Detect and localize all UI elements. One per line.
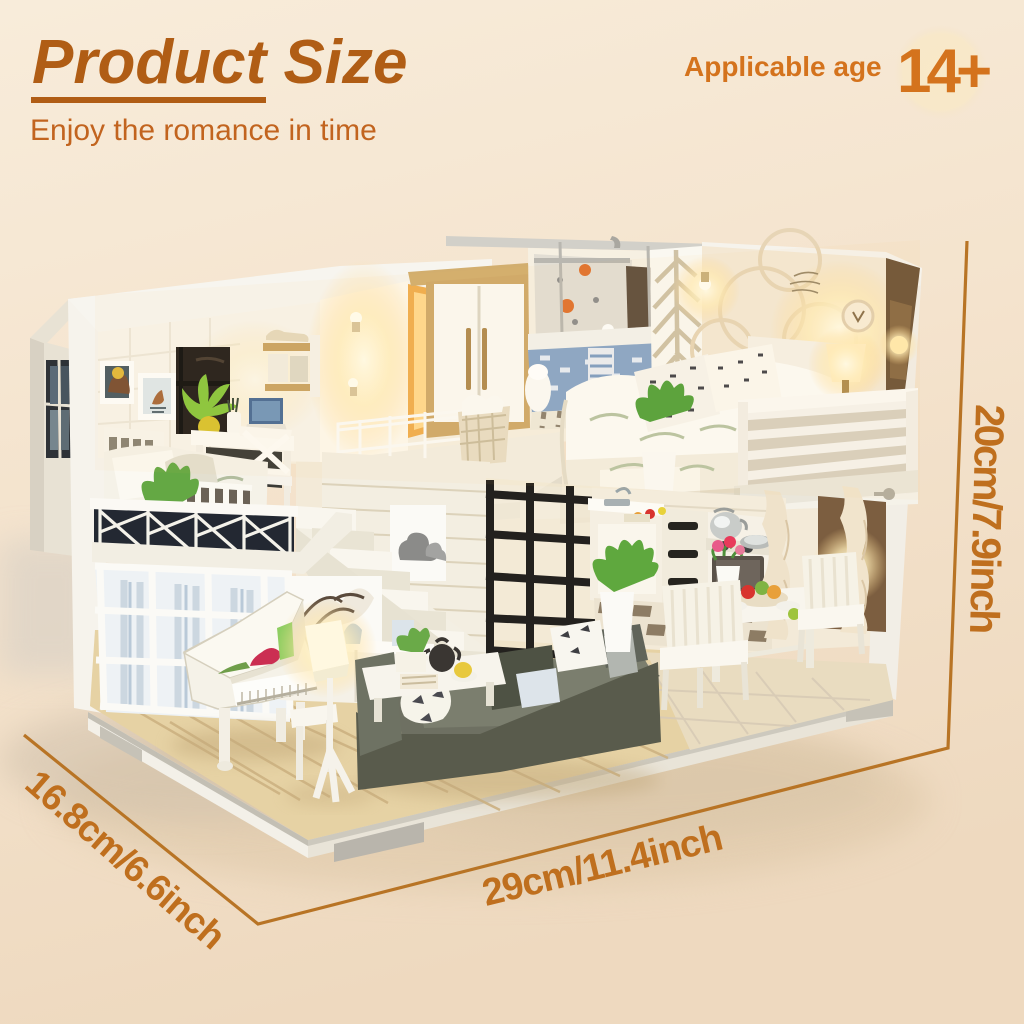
svg-text:14+: 14+ [897, 37, 990, 106]
svg-text:Product Size: Product Size [32, 28, 408, 97]
svg-text:20cm/7.9inch: 20cm/7.9inch [961, 404, 1013, 633]
svg-text:Applicable age: Applicable age [684, 51, 882, 82]
svg-text:Enjoy the romance in time: Enjoy the romance in time [30, 114, 377, 147]
